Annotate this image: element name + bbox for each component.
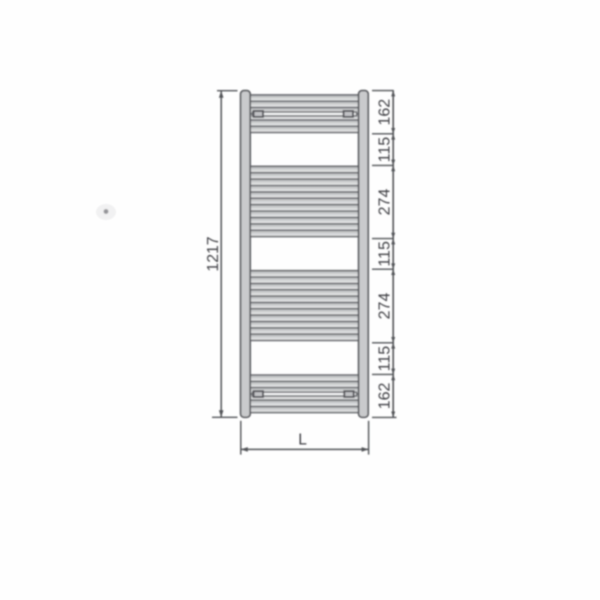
svg-text:115: 115 xyxy=(377,241,394,267)
svg-text:274: 274 xyxy=(377,189,394,216)
svg-text:274: 274 xyxy=(377,293,394,320)
svg-text:162: 162 xyxy=(377,382,394,409)
svg-text:1217: 1217 xyxy=(205,236,222,271)
svg-text:115: 115 xyxy=(377,137,394,163)
svg-text:162: 162 xyxy=(377,99,394,126)
svg-text:115: 115 xyxy=(377,346,394,372)
svg-text:L: L xyxy=(298,431,307,448)
